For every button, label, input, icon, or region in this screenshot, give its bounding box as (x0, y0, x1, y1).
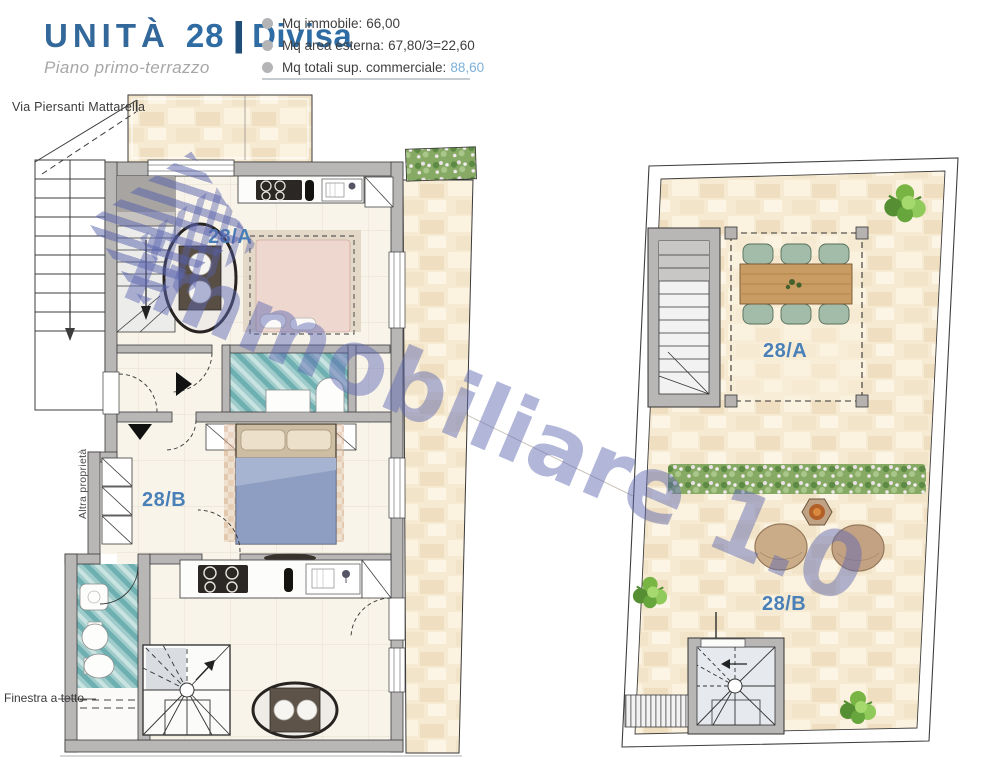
side-balcony (403, 147, 477, 753)
title-separator: | (231, 16, 245, 55)
area-stats: Mq immobile: 66,00 Mq area esterna: 67,8… (262, 12, 484, 78)
top-terrace (128, 95, 312, 162)
header-divider (262, 78, 470, 80)
kitchen-a (238, 176, 393, 207)
unit-word: UNITÀ (44, 17, 170, 55)
kitchen-b (180, 554, 391, 599)
unit-a-label-floor: 28/A (208, 226, 252, 249)
terrace-staircase (648, 228, 720, 407)
unit-number: 28 (186, 17, 225, 55)
sink-a (322, 179, 362, 201)
bullet-icon (262, 62, 273, 73)
unit-b-label-floor: 28/B (142, 489, 186, 512)
unit-b-label-terrace: 28/B (762, 593, 806, 616)
dining-set-b (253, 683, 337, 737)
grate-strip (625, 695, 688, 727)
roof-window-label: Finestra a tetto (4, 691, 84, 705)
double-bed-b (224, 424, 344, 544)
adjacent-property-label: Altra proprietà (77, 449, 89, 519)
flower-box (405, 147, 476, 181)
left-plan (35, 95, 477, 756)
pergola (725, 227, 868, 407)
terrace-plan (622, 158, 958, 747)
bullet-icon (262, 18, 273, 29)
daybed-a (243, 230, 361, 334)
unit-a-label-terrace: 28/A (763, 340, 807, 363)
street-label: Via Piersanti Mattarella (12, 100, 145, 114)
stat-row: Mq immobile: 66,00 (262, 12, 484, 34)
bullet-icon (262, 40, 273, 51)
pouf (755, 524, 807, 570)
stat-row: Mq area esterna: 67,80/3=22,60 (262, 34, 484, 56)
stat-row: Mq totali sup. commerciale: 88,60 (262, 56, 484, 78)
pouf (832, 525, 884, 571)
floor-plan-sheet: UNITÀ 28 | Divisa Piano primo-terrazzo M… (0, 0, 982, 759)
hedge-row (668, 464, 926, 494)
sink-b (306, 564, 360, 594)
spiral-staircase-b (143, 645, 230, 735)
floor-plan-graphic (0, 0, 982, 759)
